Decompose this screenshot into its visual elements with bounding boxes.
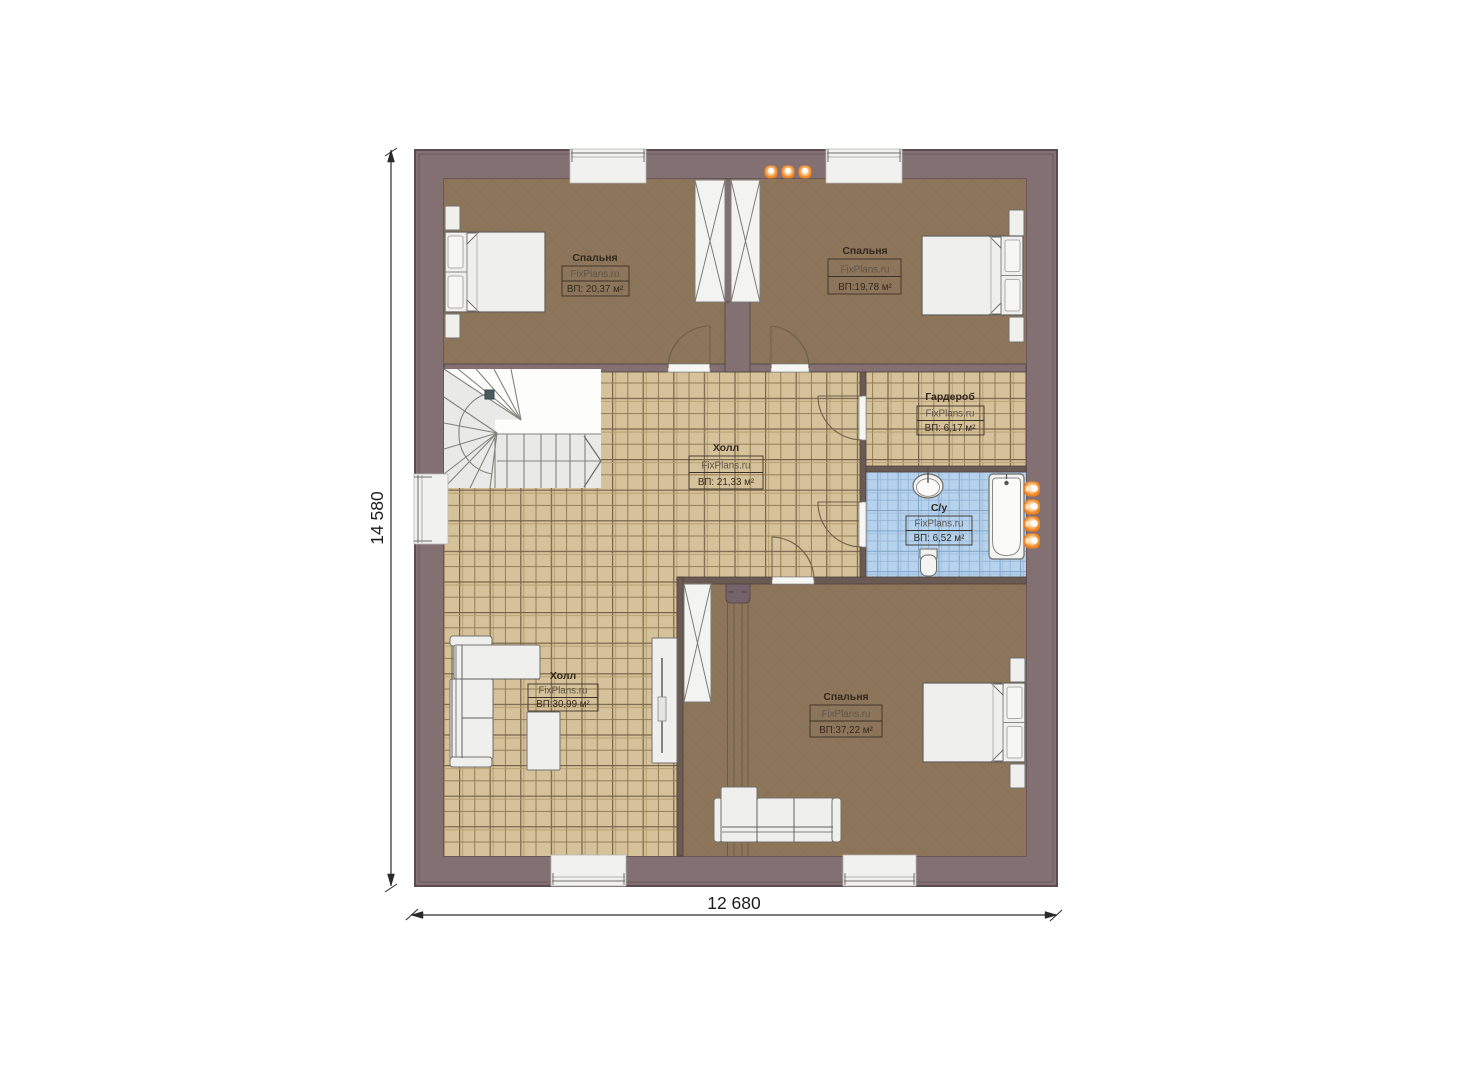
svg-text:Спальня: Спальня	[572, 252, 617, 264]
svg-text:FixPlans.ru: FixPlans.ru	[822, 709, 871, 720]
svg-text:Холл: Холл	[713, 442, 739, 454]
svg-text:ВП: 21,33 м²: ВП: 21,33 м²	[698, 477, 755, 488]
svg-text:FixPlans.ru: FixPlans.ru	[915, 519, 964, 530]
svg-text:Холл: Холл	[550, 670, 576, 682]
svg-text:ВП: 6,52 м²: ВП: 6,52 м²	[914, 533, 966, 544]
svg-text:14 580: 14 580	[367, 491, 387, 545]
svg-text:Спальня: Спальня	[842, 245, 887, 257]
svg-text:ВП:30,99 м²: ВП:30,99 м²	[536, 699, 590, 710]
svg-text:ВП:37,22 м²: ВП:37,22 м²	[819, 725, 873, 736]
svg-text:С/у: С/у	[931, 502, 948, 514]
svg-text:FixPlans.ru: FixPlans.ru	[702, 461, 751, 472]
svg-text:FixPlans.ru: FixPlans.ru	[841, 265, 890, 276]
svg-text:ВП: 6,17 м²: ВП: 6,17 м²	[925, 423, 977, 434]
svg-text:ВП:19,78 м²: ВП:19,78 м²	[838, 282, 892, 293]
svg-text:12 680: 12 680	[707, 893, 761, 913]
svg-text:Гардероб: Гардероб	[925, 391, 975, 403]
svg-text:Спальня: Спальня	[823, 691, 868, 703]
svg-text:ВП: 20,37 м²: ВП: 20,37 м²	[567, 284, 624, 295]
svg-text:FixPlans.ru: FixPlans.ru	[926, 409, 975, 420]
svg-text:FixPlans.ru: FixPlans.ru	[571, 269, 620, 280]
svg-text:FixPlans.ru: FixPlans.ru	[539, 686, 588, 697]
